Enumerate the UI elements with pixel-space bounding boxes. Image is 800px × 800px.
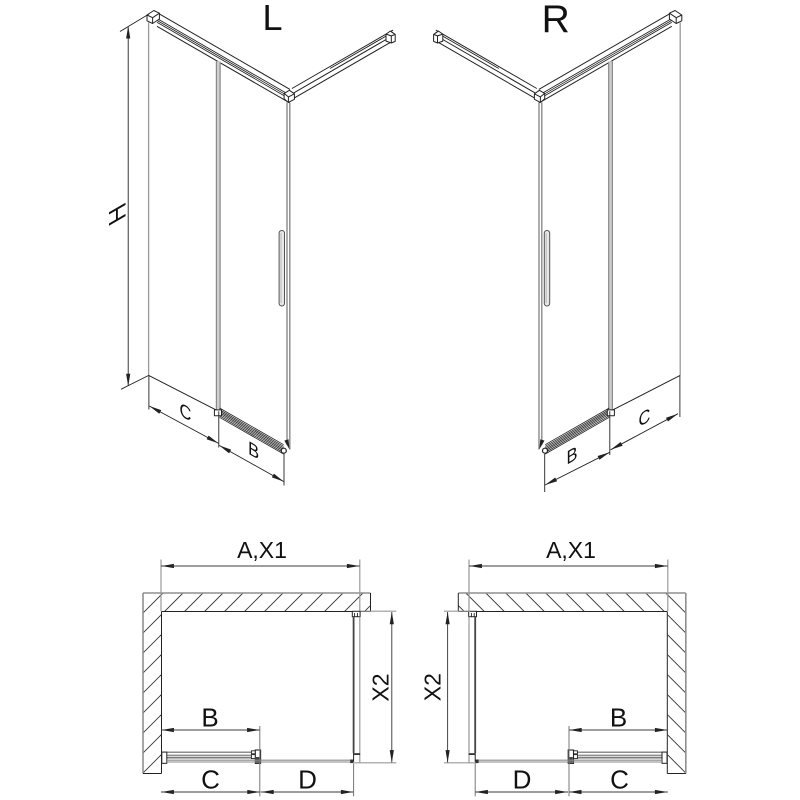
svg-text:X2: X2 xyxy=(420,673,446,701)
svg-text:L: L xyxy=(262,0,282,38)
svg-text:D: D xyxy=(513,765,532,795)
svg-text:R: R xyxy=(542,0,570,41)
svg-text:A,X1: A,X1 xyxy=(237,537,287,563)
svg-text:C: C xyxy=(610,765,629,795)
svg-text:B: B xyxy=(201,703,218,733)
svg-text:B: B xyxy=(610,703,627,733)
svg-text:C: C xyxy=(201,765,220,795)
svg-text:D: D xyxy=(298,765,317,795)
svg-text:A,X1: A,X1 xyxy=(546,537,596,563)
svg-text:X2: X2 xyxy=(368,673,394,701)
